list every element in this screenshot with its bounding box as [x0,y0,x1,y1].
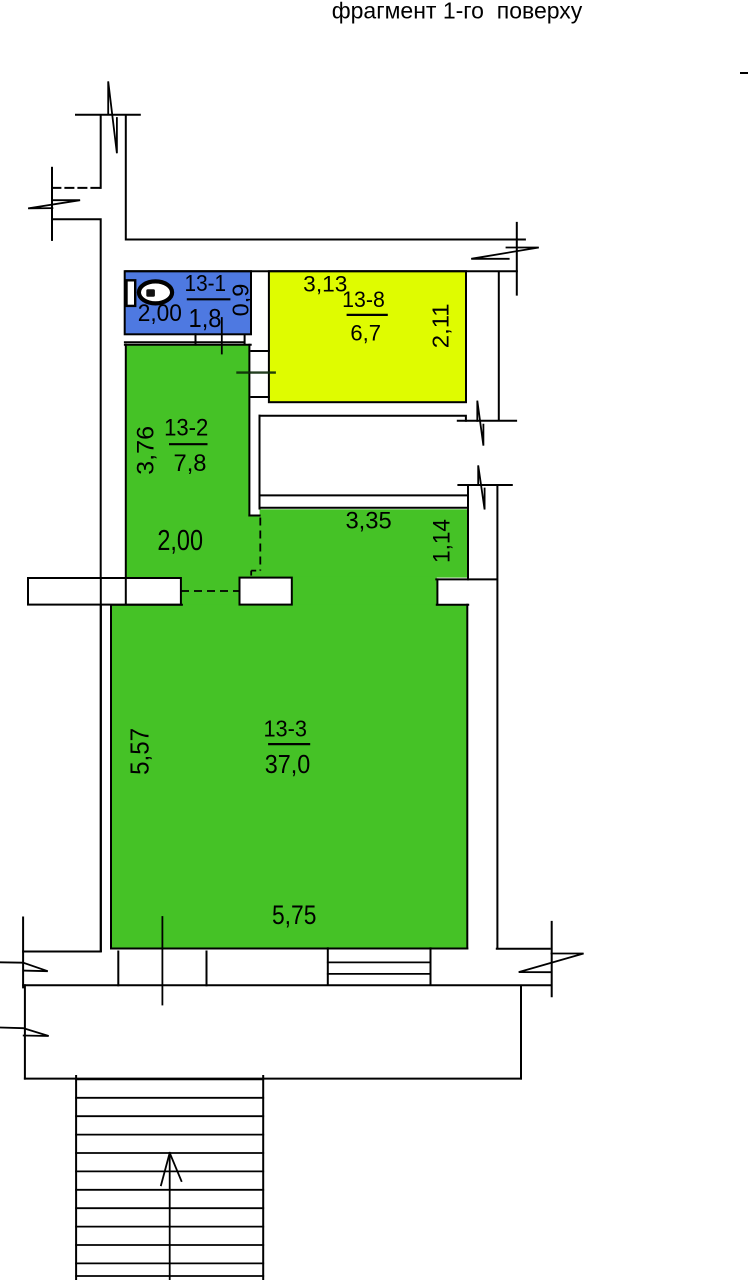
svg-text:3,35: 3,35 [345,507,391,534]
svg-text:2,11: 2,11 [427,303,453,348]
svg-text:5,75: 5,75 [272,900,316,930]
svg-text:5,57: 5,57 [125,728,155,775]
svg-text:6,7: 6,7 [350,321,381,346]
svg-text:1,8: 1,8 [189,303,222,333]
svg-text:13-8: 13-8 [342,287,385,312]
svg-text:13-2: 13-2 [164,415,208,441]
svg-text:13-1: 13-1 [185,270,227,296]
svg-text:2,00: 2,00 [157,525,203,557]
svg-text:фрагмент 1-го поверху: фрагмент 1-го поверху [332,0,583,23]
svg-text:37,0: 37,0 [265,751,311,779]
svg-text:3,13: 3,13 [303,271,347,296]
svg-text:1,14: 1,14 [429,519,456,563]
svg-text:0,9: 0,9 [228,284,254,317]
svg-text:13-3: 13-3 [263,716,307,742]
svg-text:7,8: 7,8 [174,451,207,477]
svg-text:2,00: 2,00 [138,300,182,327]
svg-text:3,76: 3,76 [133,426,160,475]
